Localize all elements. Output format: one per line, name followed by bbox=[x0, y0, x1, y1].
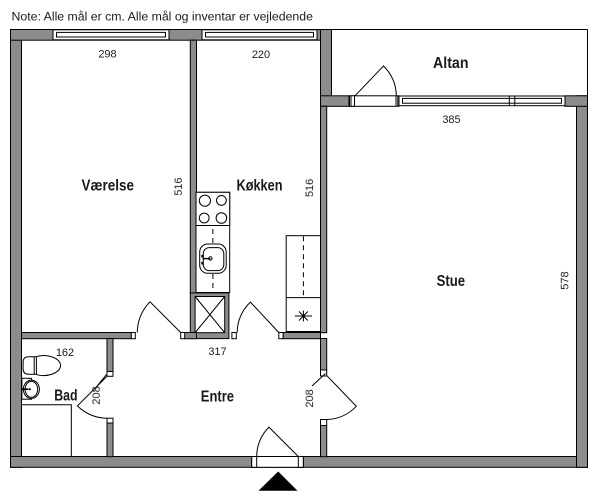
svg-text:516: 516 bbox=[173, 177, 185, 195]
svg-text:Note: Alle mål er cm. Alle mål: Note: Alle mål er cm. Alle mål og invent… bbox=[12, 10, 314, 24]
svg-text:578: 578 bbox=[559, 271, 571, 289]
svg-text:298: 298 bbox=[98, 49, 116, 61]
svg-text:208: 208 bbox=[91, 386, 103, 404]
svg-text:385: 385 bbox=[442, 114, 460, 126]
svg-text:Køkken: Køkken bbox=[237, 178, 283, 195]
svg-text:Værelse: Værelse bbox=[82, 178, 135, 195]
svg-text:Bad: Bad bbox=[54, 388, 77, 405]
svg-text:Altan: Altan bbox=[433, 55, 469, 72]
svg-text:Entre: Entre bbox=[201, 388, 234, 405]
svg-text:208: 208 bbox=[304, 389, 316, 407]
svg-text:Stue: Stue bbox=[437, 273, 466, 290]
svg-text:516: 516 bbox=[304, 179, 316, 197]
svg-text:317: 317 bbox=[208, 346, 226, 358]
svg-text:220: 220 bbox=[252, 49, 270, 61]
svg-text:162: 162 bbox=[56, 347, 74, 359]
